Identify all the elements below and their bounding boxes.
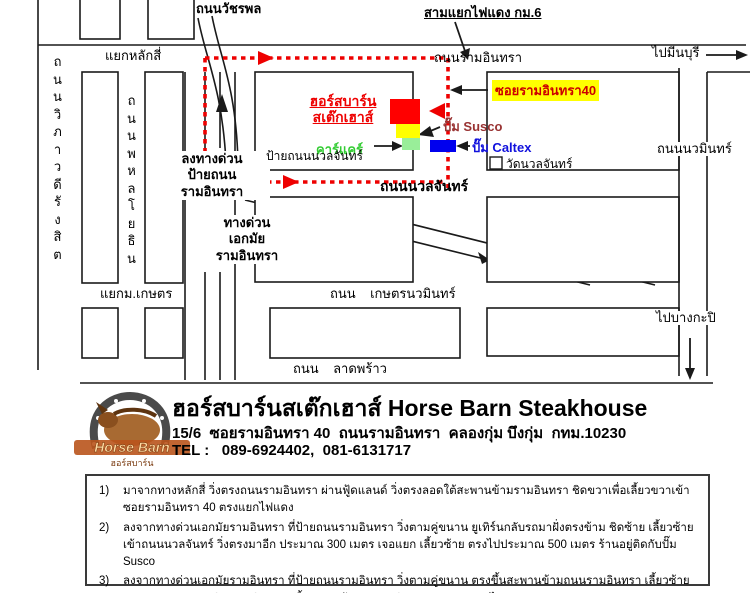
direction-item-3: 3) ลงจากทางด่วนเอกมัยรามอินทรา ที่ป้ายถน… — [99, 573, 700, 593]
label-nuanchan-road: ถนนนวลจันทร์ — [380, 179, 468, 194]
label-lat-phrao-road: ถนน ลาดพร้าว — [293, 362, 387, 376]
restaurant-marker — [390, 99, 420, 124]
label-restaurant-name: ฮอร์สบาร์น สเต๊กเฮาส์ — [298, 93, 388, 125]
susco-marker — [396, 124, 420, 138]
caltex-marker — [430, 140, 456, 152]
directions-box: 1) มาจากทางหลักสี่ วิ่งตรงถนนรามอินทรา ผ… — [85, 474, 710, 586]
direction-text: ลงจากทางด่วนเอกมัยรามอินทรา ที่ป้ายถนนรา… — [123, 573, 700, 593]
label-nawamin-road: ถนนนวมินทร์ — [655, 142, 734, 156]
direction-number: 3) — [99, 573, 123, 593]
direction-number: 2) — [99, 520, 123, 572]
direction-number: 1) — [99, 483, 123, 518]
label-expressway-ekamai: ทางด่วน เอกมัย รามอินทรา — [190, 215, 304, 264]
label-yaek-kaset: แยกม.เกษตร — [100, 287, 172, 301]
label-wat-nuanchan: วัดนวลจันทร์ — [506, 158, 572, 171]
horse-barn-map-flyer: ถนนวัชรพล สามแยกไฟแดง กม.6 แยกหลักสี่ ถน… — [0, 0, 750, 593]
temple-marker — [490, 157, 502, 169]
label-exit-expressway: ลงทางด่วน ป้ายถนน รามอินทรา — [154, 151, 270, 200]
label-ram-inthra-road: ถนนรามอินทรา — [434, 51, 522, 65]
label-phahonyothin-road: ถ น น พ ห ล โ ย ธิ น — [124, 92, 139, 267]
label-nuanchan-sign: ป้ายถนนนวลจันทร์ — [266, 150, 363, 163]
logo-name-en: Horse Barn — [94, 439, 169, 455]
label-caltex-station: ปั๊ม Caltex — [472, 137, 531, 158]
logo-name-th: ฮอร์สบาร์น — [111, 457, 154, 468]
carcare-marker — [402, 138, 420, 150]
label-yaek-laksi: แยกหลักสี่ — [105, 49, 161, 63]
direction-text: ลงจากทางด่วนเอกมัยรามอินทรา ที่ป้ายถนนรา… — [123, 520, 700, 572]
label-vibhavadi-road: ถ น น วิ ภ า ว ดี รั ง สิ ต — [50, 53, 65, 264]
restaurant-phone: TEL : 089-6924402, 081-6131717 — [172, 442, 411, 459]
direction-text: มาจากทางหลักสี่ วิ่งตรงถนนรามอินทรา ผ่าน… — [123, 483, 700, 518]
direction-item-2: 2) ลงจากทางด่วนเอกมัยรามอินทรา ที่ป้ายถน… — [99, 520, 700, 572]
label-susco-station: ปั๊ม Susco — [443, 116, 502, 137]
label-to-bangkapi: ไปบางกะปิ — [654, 311, 718, 325]
direction-item-1: 1) มาจากทางหลักสี่ วิ่งตรงถนนรามอินทรา ผ… — [99, 483, 700, 518]
label-watcharaphon-road: ถนนวัชรพล — [196, 2, 261, 16]
label-soi-ram-inthra-40: ซอยรามอินทรา40 — [492, 80, 599, 101]
label-to-minburi: ไปมีนบุรี — [652, 46, 699, 60]
label-sam-yaek-fai-daeng: สามแยกไฟแดง กม.6 — [424, 6, 541, 20]
label-kaset-nawamin-road: ถนน เกษตรนวมินทร์ — [330, 287, 456, 301]
